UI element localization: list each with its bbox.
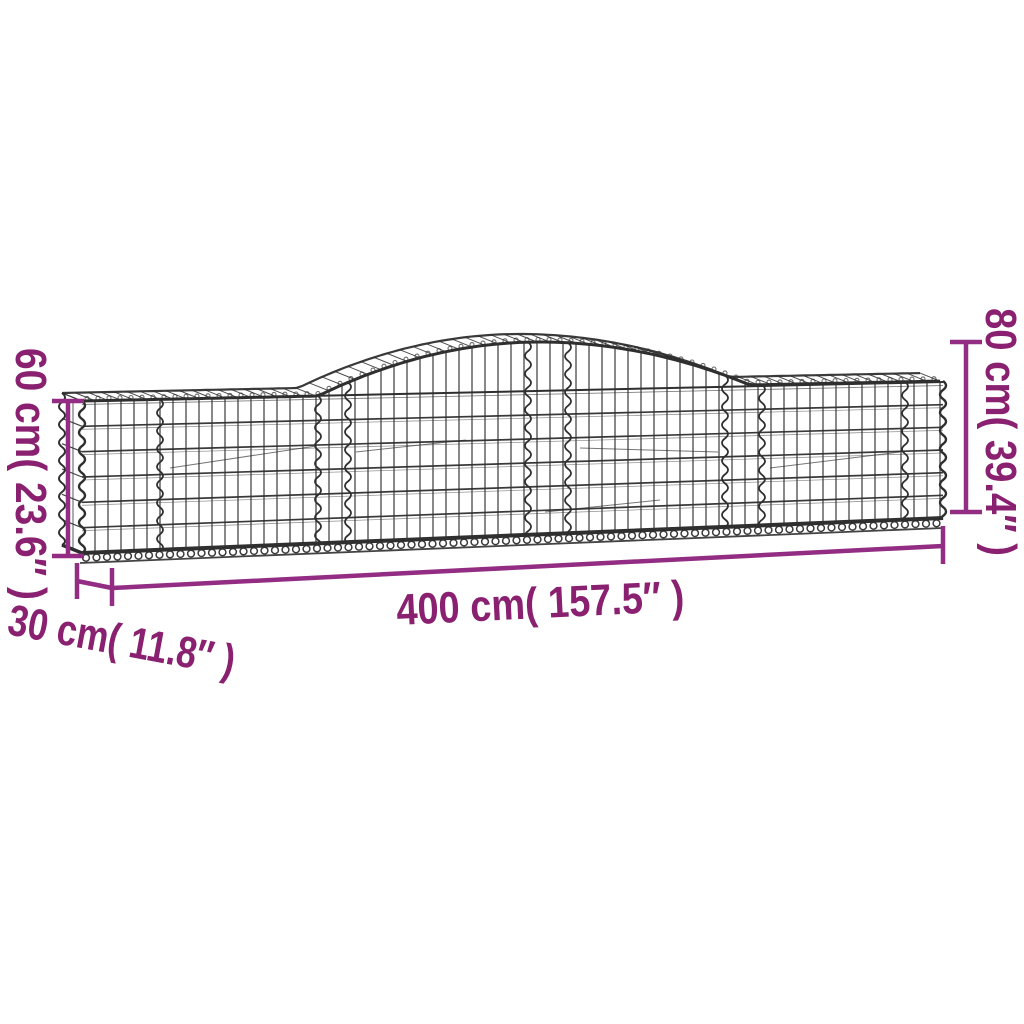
gabion-basket-drawing <box>59 334 946 563</box>
height-peak-label: 80 cm( 39.4″ ) <box>976 308 1024 556</box>
length-dimension: 400 cm( 157.5″ ) <box>112 526 943 635</box>
diagram-canvas: 60 cm( 23.6″ ) 80 cm( 39.4″ ) 400 cm( 15… <box>0 0 1024 1024</box>
height-end-label: 60 cm( 23.6″ ) <box>6 348 55 600</box>
length-label: 400 cm( 157.5″ ) <box>395 572 685 635</box>
height-peak-dimension: 80 cm( 39.4″ ) <box>950 308 1024 556</box>
depth-label: 30 cm( 11.8″ ) <box>4 596 239 686</box>
height-end-dimension: 60 cm( 23.6″ ) <box>6 348 84 600</box>
gabion-dimension-diagram: 60 cm( 23.6″ ) 80 cm( 39.4″ ) 400 cm( 15… <box>0 0 1024 1024</box>
dimension-line <box>77 581 112 588</box>
